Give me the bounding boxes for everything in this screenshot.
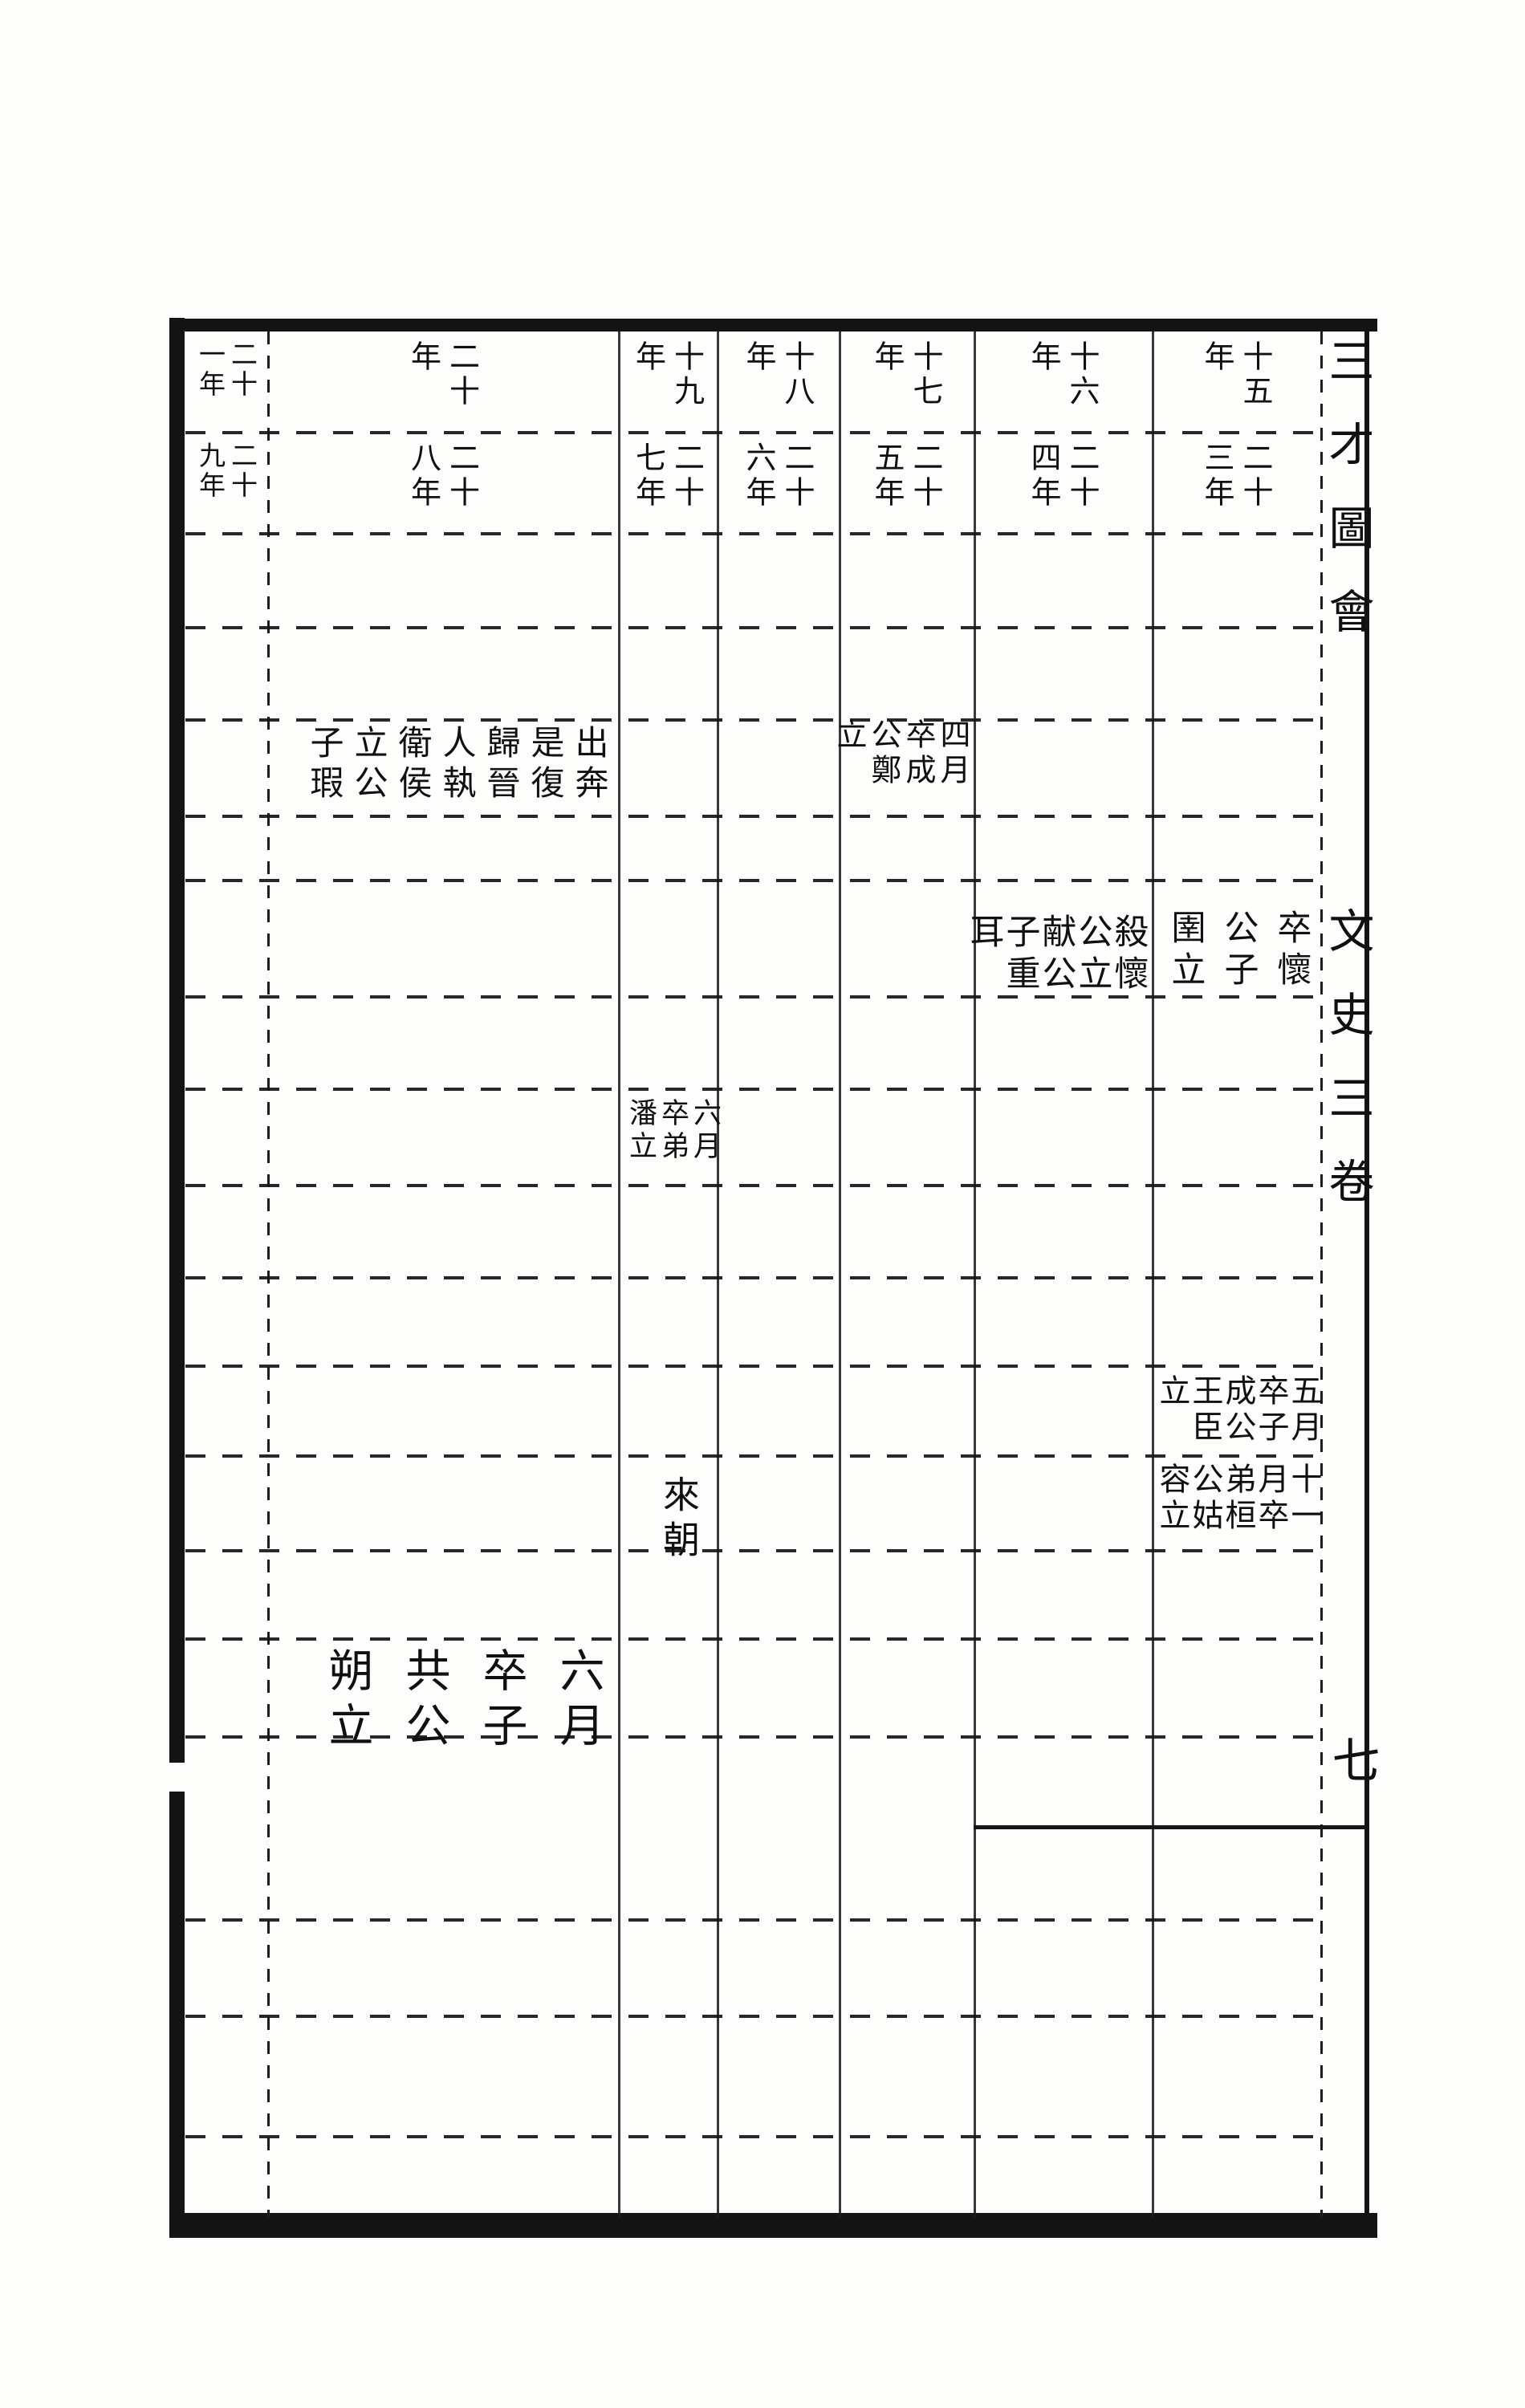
year-label: 二十六年: [739, 441, 816, 514]
row-divider: [185, 1918, 1322, 1922]
event-cell: 卒懷公子圉立: [1159, 909, 1318, 995]
year-label: 十九年: [629, 340, 706, 413]
year-column-header: 十六年 二十四年: [974, 336, 1152, 533]
event-cell: 出奔是復歸晉人執衛侯立公子瑕: [303, 725, 612, 807]
table-border-bottom: [169, 2213, 1377, 2238]
event-cell: 五月卒子成公王臣立: [1156, 1374, 1320, 1448]
year-label: 二十七年: [629, 441, 706, 514]
year-label: 二十五年: [868, 441, 945, 514]
book-title: 三才圖會: [1323, 337, 1372, 690]
event-cell: 殺懷公立献公子重耳: [966, 913, 1146, 999]
row-divider: [185, 815, 1322, 818]
year-label: 十六年: [1024, 340, 1101, 413]
row-divider: [185, 1365, 1322, 1368]
row-divider: [185, 1184, 1322, 1187]
year-column-header: 十七年 二十五年: [839, 336, 974, 533]
year-label: 二十四年: [1024, 441, 1101, 514]
year-label: 二十八年: [405, 441, 482, 514]
volume-title: 文史三卷: [1323, 907, 1372, 1268]
event-cell: 四月卒成公鄭立: [832, 718, 970, 792]
row-divider: [185, 995, 1322, 999]
row-divider: [185, 2015, 1322, 2018]
year-label: 二十年: [405, 340, 482, 413]
column-divider: [839, 332, 841, 2218]
row-divider: [185, 1276, 1322, 1279]
row-divider: [185, 1549, 1322, 1552]
year-label: 十五年: [1198, 340, 1275, 413]
scanned-book-page: 十五年 二十三年 十六年 二十四年 十七年 二十五年 十八年 二十六年 十九年 …: [0, 0, 1525, 2408]
event-cell: 六月卒弟潘立: [624, 1098, 721, 1165]
column-divider: [618, 332, 620, 2218]
column-divider: [267, 332, 270, 2218]
year-column-header: 十九年 二十七年: [618, 336, 717, 533]
event-cell: 十一月卒弟桓公姑容立: [1156, 1462, 1320, 1536]
row-divider: [185, 2135, 1322, 2138]
event-cell: 六月卒子共公朔立: [308, 1647, 616, 1758]
row-divider: [185, 1637, 1322, 1641]
border-scan-gap: [165, 1763, 189, 1792]
column-divider: [717, 332, 719, 2218]
page-number: 七: [1326, 1735, 1377, 1808]
year-label: 二十一年: [194, 340, 258, 403]
year-label: 二十三年: [1198, 441, 1275, 514]
row-divider: [185, 718, 1322, 722]
row-divider: [185, 1454, 1322, 1458]
row-divider: [185, 1088, 1322, 1091]
year-label: 十七年: [868, 340, 945, 413]
year-column-header: 十五年 二十三年: [1152, 336, 1320, 533]
year-column-header: 二十年 二十八年: [267, 336, 618, 533]
table-border-left: [169, 318, 185, 2238]
row-divider: [185, 879, 1322, 882]
year-column-header: 十八年 二十六年: [717, 336, 839, 533]
year-label: 十八年: [739, 340, 816, 413]
row-divider: [185, 626, 1322, 629]
year-column-header: 二十一年 二十九年: [185, 336, 267, 533]
table-border-top: [178, 319, 1377, 332]
column-divider: [1152, 332, 1154, 2218]
row-divider-solid: [974, 1825, 1368, 1829]
year-label: 二十九年: [194, 441, 258, 504]
column-divider: [974, 332, 976, 2218]
event-cell: 來朝: [656, 1475, 702, 1567]
